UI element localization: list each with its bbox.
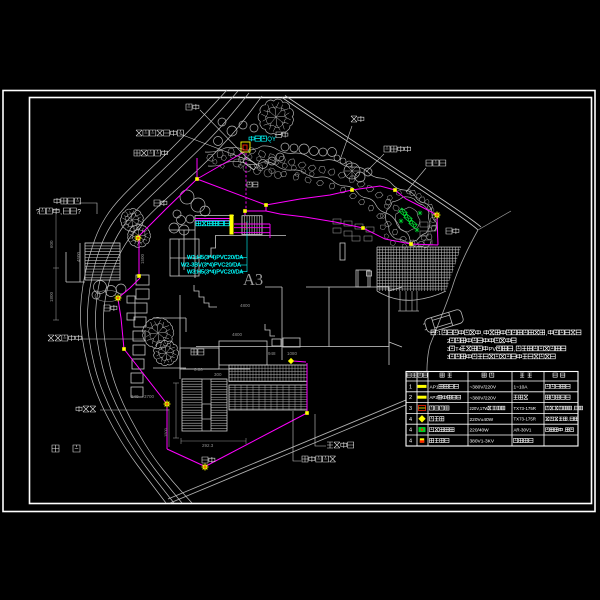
svg-text:4: 4 [409, 439, 412, 445]
svg-text:4800: 4800 [232, 332, 243, 337]
svg-text:3: 3 [409, 406, 412, 412]
svg-text:~380V/220V: ~380V/220V [470, 395, 497, 401]
svg-text:1~10A: 1~10A [514, 385, 529, 391]
svg-text::1: :1 [437, 331, 442, 337]
svg-text:,: , [568, 417, 569, 422]
svg-text:300: 300 [214, 372, 222, 377]
svg-text:~380V/220V: ~380V/220V [470, 385, 497, 391]
svg-text:PVC: PVC [489, 347, 500, 353]
svg-text:A3: A3 [243, 270, 263, 289]
svg-text:600: 600 [49, 240, 54, 248]
svg-text:1: 1 [409, 384, 412, 390]
svg-text:3700: 3700 [144, 394, 155, 399]
svg-text:TX73-175R: TX73-175R [514, 417, 536, 422]
svg-text:QY: QY [267, 137, 276, 143]
svg-text:220V±40W: 220V±40W [470, 417, 494, 423]
svg-text:1500: 1500 [163, 427, 168, 437]
svg-text:220/40W: 220/40W [470, 428, 490, 434]
svg-text:292.3: 292.3 [202, 443, 214, 448]
svg-text:240: 240 [131, 394, 139, 399]
svg-text:948: 948 [268, 351, 276, 356]
svg-text:4800: 4800 [240, 303, 251, 308]
svg-text:W3:H5(3*4)PVC20/DA: W3:H5(3*4)PVC20/DA [187, 270, 244, 276]
svg-text:1080: 1080 [287, 351, 298, 356]
svg-text:AP2:: AP2: [430, 395, 440, 400]
svg-text:AP1:: AP1: [430, 385, 440, 391]
svg-text:W1:H5(3*4)PVC20/DA: W1:H5(3*4)PVC20/DA [187, 255, 244, 261]
svg-text:W2-3BV(3*4)PVC20/DA: W2-3BV(3*4)PVC20/DA [181, 263, 241, 269]
svg-text:1800: 1800 [49, 291, 54, 302]
svg-text:0.00: 0.00 [194, 367, 203, 372]
svg-text:4500: 4500 [76, 251, 81, 262]
svg-text:TX73-175R: TX73-175R [514, 406, 536, 411]
svg-text:T4: T4 [455, 347, 461, 353]
svg-text:220V,17W: 220V,17W [470, 406, 489, 411]
svg-text:,: , [60, 209, 62, 216]
svg-text:2: 2 [409, 395, 412, 401]
svg-text:AR-30V1: AR-30V1 [514, 428, 532, 433]
svg-text:?: ? [77, 209, 81, 216]
svg-text:,: , [564, 427, 565, 432]
svg-text:4: 4 [409, 428, 412, 434]
svg-text:,: , [573, 406, 574, 411]
svg-text:1500: 1500 [140, 253, 145, 264]
svg-text:4: 4 [409, 417, 412, 423]
svg-text:380V1-3KV: 380V1-3KV [470, 439, 495, 445]
